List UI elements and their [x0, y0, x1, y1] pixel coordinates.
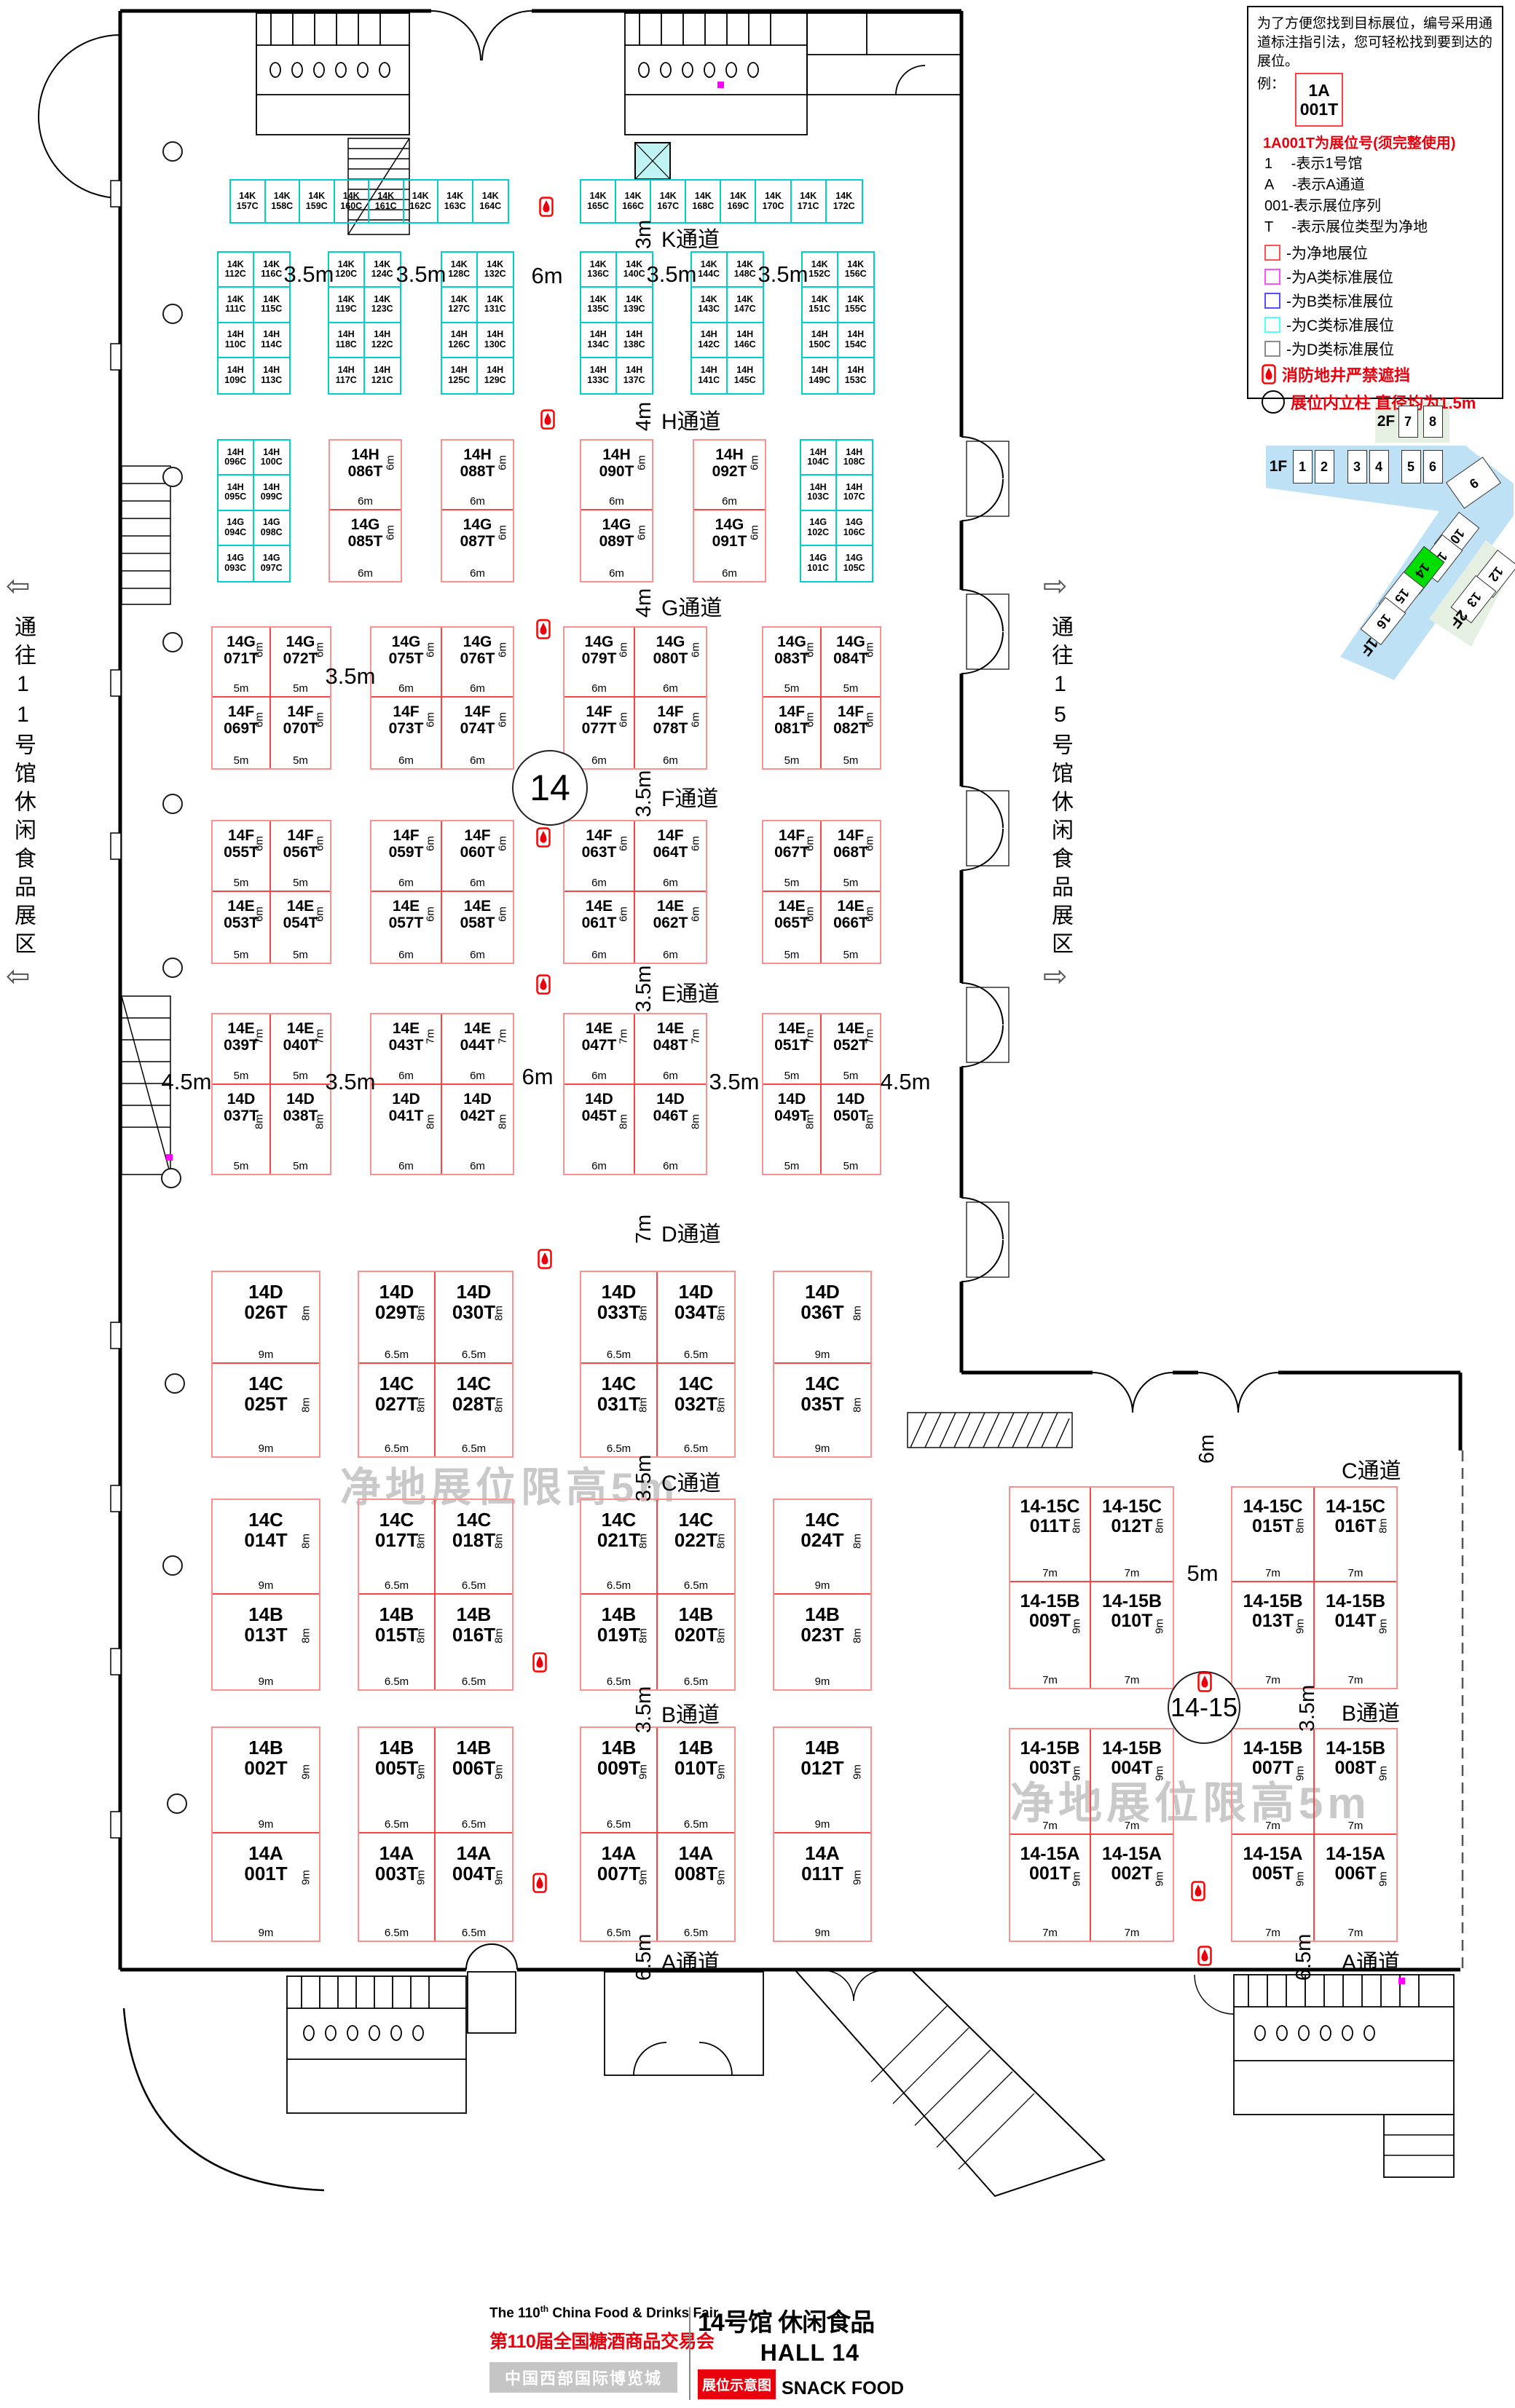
booth-14E054T: 14E054T6m5m: [271, 892, 330, 963]
booth-14K165C: 14K165C: [581, 181, 616, 222]
legend-item-type-c: -为C类标准展位: [1286, 314, 1394, 336]
booth-14G080T: 14G080T6m6m: [635, 628, 706, 698]
gap-dim-5: 3.5m: [323, 663, 378, 690]
booth-14E047T: 14E047T7m6m: [564, 1014, 635, 1085]
booth-14C032T: 14C032T8m6.5m: [658, 1364, 734, 1456]
column-marker-3: [162, 632, 183, 652]
booth-14B016T: 14B016T8m6.5m: [436, 1595, 512, 1689]
k-block-4: 14K136C14K140C14K135C14K139C14H134C14H13…: [580, 251, 653, 395]
booth-14G084T: 14G084T6m5m: [822, 628, 880, 698]
booth-14K169C: 14K169C: [721, 181, 756, 222]
booth-14A004T: 14A004T9m6.5m: [436, 1833, 512, 1941]
booth-14-15C011T: 14-15C011T8m7m: [1010, 1488, 1091, 1582]
minimap-floor1-label: 1F: [1266, 450, 1291, 483]
aisle-label-H通道: H通道: [661, 403, 721, 435]
booth-14-15C012T: 14-15C012T8m7m: [1091, 1488, 1173, 1582]
booth-14-15B014T: 14-15B014T9m7m: [1315, 1582, 1396, 1688]
booth-14-15C016T: 14-15C016T8m7m: [1315, 1488, 1396, 1582]
booth-14E044T: 14E044T7m6m: [442, 1014, 513, 1085]
gap-dim-4: 3.5m: [755, 261, 811, 288]
fire-well-icon-10: [1197, 1946, 1212, 1966]
minimap-hall-2: 2: [1315, 450, 1334, 483]
booth-14D042T: 14D042T8m6m: [442, 1085, 513, 1174]
aisle-label-A通道: A通道: [661, 1944, 720, 1976]
minimap-floor2-label: 2F: [1374, 406, 1398, 438]
booth-14H154C: 14H154C: [838, 323, 874, 358]
hall-title-en: HALL 14: [698, 2340, 859, 2366]
booth-14E043T: 14E043T7m6m: [371, 1014, 442, 1085]
fire-well-icon-9: [1191, 1881, 1205, 1901]
booth-14C024T: 14C024T8m9m: [774, 1500, 870, 1595]
gap-dim-10: 4.5m: [878, 1069, 933, 1095]
legend-def-4: T -表示展位类型为净地: [1264, 217, 1493, 238]
column-icon: [1262, 390, 1285, 414]
booth-14G076T: 14G076T6m6m: [442, 628, 513, 698]
gf-block-4: 14G083T6m5m14G084T6m5m14F081T6m5m14F082T…: [762, 626, 881, 770]
annex-aisle-dim-B通道: 3.5m: [1272, 1694, 1342, 1723]
right-corridor-arrow-top: ⇨: [1043, 569, 1068, 603]
booth-14E058T: 14E058T6m6m: [442, 892, 513, 963]
utility-dot-2: [1398, 1978, 1405, 1984]
booth-14D033T: 14D033T8m6.5m: [581, 1272, 658, 1364]
booth-14F055T: 14F055T6m5m: [213, 821, 271, 892]
booth-14D045T: 14D045T8m6m: [564, 1085, 635, 1174]
aisle-label-B通道: B通道: [661, 1697, 720, 1729]
legend-item-type-d: -为D类标准展位: [1286, 338, 1394, 360]
annex-aisle-label-C通道: C通道: [1342, 1453, 1401, 1485]
booth-14H096C: 14H096C: [219, 441, 254, 475]
booth-14B015T: 14B015T8m6.5m: [359, 1595, 436, 1689]
swatch-open-space: [1264, 245, 1280, 261]
booth-14A003T: 14A003T9m6.5m: [359, 1833, 436, 1941]
booth-14E051T: 14E051T7m5m: [763, 1014, 822, 1085]
footer-divider: [689, 2307, 690, 2400]
swatch-type-c: [1264, 317, 1280, 333]
aisle-label-G通道: G通道: [661, 590, 722, 622]
booth-14K143C: 14K143C: [692, 288, 728, 323]
booth-14C022T: 14C022T8m6.5m: [658, 1500, 734, 1595]
booth-14H149C: 14H149C: [803, 358, 838, 393]
column-marker-9: [167, 1793, 187, 1814]
legend-item-open-space: -为净地展位: [1286, 242, 1368, 264]
booth-14K132C: 14K132C: [478, 253, 513, 288]
aisle-label-F通道: F通道: [661, 781, 718, 813]
booth-14-15A002T: 14-15A002T9m7m: [1091, 1835, 1173, 1941]
booth-14K147C: 14K147C: [728, 288, 763, 323]
booth-14G091T: 14G091T6m6m: [694, 510, 765, 581]
booth-14C027T: 14C027T8m6.5m: [359, 1364, 436, 1456]
booth-14G089T: 14G089T6m6m: [581, 510, 652, 581]
booth-14H150C: 14H150C: [803, 323, 838, 358]
gap-dim-6: 4.5m: [159, 1069, 214, 1095]
booth-14D046T: 14D046T8m6m: [635, 1085, 706, 1174]
booth-14F074T: 14F074T6m6m: [442, 698, 513, 768]
booth-14F078T: 14F078T6m6m: [635, 698, 706, 768]
booth-14C018T: 14C018T8m6.5m: [436, 1500, 512, 1595]
booth-14G075T: 14G075T6m6m: [371, 628, 442, 698]
booth-14G098C: 14G098C: [254, 511, 290, 546]
booth-14-15B008T: 14-15B008T9m7m: [1315, 1729, 1396, 1835]
annex-upper-block-1: 14-15C011T8m7m14-15C012T8m7m14-15B009T9m…: [1009, 1486, 1174, 1689]
booth-14A011T: 14A011T9m9m: [774, 1833, 870, 1941]
booth-14-15A001T: 14-15A001T9m7m: [1010, 1835, 1091, 1941]
booth-14H114C: 14H114C: [254, 323, 290, 358]
booth-14E057T: 14E057T6m6m: [371, 892, 442, 963]
booth-14H088T: 14H088T6m6m: [442, 441, 513, 510]
booth-14H107C: 14H107C: [837, 475, 873, 510]
booth-14H137C: 14H137C: [617, 358, 653, 393]
annex-aisle-dim-C通道: 6m: [1172, 1434, 1242, 1464]
fire-well-icon-7: [532, 1873, 547, 1893]
booth-14H110C: 14H110C: [219, 323, 254, 358]
gf-block-2: 14G075T6m6m14G076T6m6m14F073T6m6m14F074T…: [370, 626, 514, 770]
booth-14G083T: 14G083T6m5m: [763, 628, 822, 698]
booth-14D036T: 14D036T8m9m: [774, 1272, 870, 1364]
booth-14-15B010T: 14-15B010T9m7m: [1091, 1582, 1173, 1688]
booth-14B005T: 14B005T9m6.5m: [359, 1728, 436, 1833]
right-corridor-label: 通往15号馆休闲食品展区: [1044, 615, 1076, 960]
dc-block-4: 14D036T8m9m14C035T8m9m: [773, 1271, 872, 1458]
booth-14H121C: 14H121C: [365, 358, 401, 393]
dc-block-3: 14D033T8m6.5m14D034T8m6.5m14C031T8m6.5m1…: [580, 1271, 736, 1458]
legend-example-label: 例：: [1257, 73, 1285, 92]
booth-14H103C: 14H103C: [801, 475, 837, 510]
hall14-floorplan: 为了方便您找到目标展位，编号采用通道标注指引法，您可轻松找到要到达的展位。 例：…: [0, 0, 1515, 2408]
booth-14H126C: 14H126C: [442, 323, 478, 358]
booth-14F063T: 14F063T6m6m: [564, 821, 635, 892]
k-block-6: 14K152C14K156C14K151C14K155C14H150C14H15…: [801, 251, 875, 395]
booth-14H133C: 14H133C: [581, 358, 617, 393]
booth-14E065T: 14E065T6m5m: [763, 892, 822, 963]
booth-14G085T: 14G085T6m6m: [330, 510, 401, 581]
right-corridor-arrow-bottom: ⇨: [1043, 960, 1068, 993]
annex-lower-block-2: 14-15B007T9m7m14-15B008T9m7m14-15A005T9m…: [1231, 1728, 1398, 1942]
footer: The 110th China Food & Drinks Fair 第110届…: [481, 2302, 859, 2404]
booth-14K158C: 14K158C: [266, 181, 301, 222]
k-block-3: 14K128C14K132C14K127C14K131C14H126C14H13…: [441, 251, 514, 395]
booth-14D026T: 14D026T8m9m: [213, 1272, 319, 1364]
booth-14H108C: 14H108C: [837, 441, 873, 475]
booth-14H118C: 14H118C: [329, 323, 365, 358]
minimap-hall-7: 7: [1398, 406, 1418, 438]
annex-upper-block-2: 14-15C015T8m7m14-15C016T8m7m14-15B013T9m…: [1231, 1486, 1398, 1689]
cb-block-1: 14C014T8m9m14B013T8m9m: [211, 1499, 320, 1691]
booth-14K160C: 14K160C: [335, 181, 370, 222]
booth-14K172C: 14K172C: [827, 181, 862, 222]
booth-14B020T: 14B020T8m6.5m: [658, 1595, 734, 1689]
swatch-type-b: [1264, 293, 1280, 309]
annex-aisle-dim-A通道: 6.5m: [1269, 1943, 1339, 1972]
legend-item-type-a: -为A类标准展位: [1286, 266, 1393, 288]
legend-example-booth-code: 001T: [1300, 100, 1338, 119]
fire-well-icon-1: [540, 409, 555, 430]
booth-14B019T: 14B019T8m6.5m: [581, 1595, 658, 1689]
booth-14-15B013T: 14-15B013T9m7m: [1232, 1582, 1315, 1688]
minimap-hall-8: 8: [1423, 406, 1443, 438]
minimap-hall-1: 1: [1293, 450, 1313, 483]
booth-14K135C: 14K135C: [581, 288, 617, 323]
booth-14D041T: 14D041T8m6m: [371, 1085, 442, 1174]
ba-block-2: 14B005T9m6.5m14B006T9m6.5m14A003T9m6.5m1…: [358, 1726, 513, 1942]
ba-block-4: 14B012T9m9m14A011T9m9m: [773, 1726, 872, 1942]
k-top-row-right: 14K165C14K166C14K167C14K168C14K169C14K17…: [580, 179, 863, 224]
cb-block-4: 14C024T8m9m14B023T8m9m: [773, 1499, 872, 1691]
aisle-label-D通道: D通道: [661, 1216, 721, 1248]
booth-14E052T: 14E052T7m5m: [822, 1014, 880, 1085]
booth-14B013T: 14B013T8m9m: [213, 1595, 319, 1689]
fe-block-4: 14F067T6m5m14F068T6m5m14E065T6m5m14E066T…: [762, 820, 881, 964]
booth-14G087T: 14G087T6m6m: [442, 510, 513, 581]
fe-block-2: 14F059T6m6m14F060T6m6m14E057T6m6m14E058T…: [370, 820, 514, 964]
booth-14F077T: 14F077T6m6m: [564, 698, 635, 768]
annex-aisle-label-A通道: A通道: [1342, 1944, 1400, 1976]
column-marker-8: [162, 1555, 183, 1576]
booth-14K164C: 14K164C: [473, 181, 508, 222]
booth-14C031T: 14C031T8m6.5m: [581, 1364, 658, 1456]
booth-14G102C: 14G102C: [801, 511, 837, 546]
gf-block-3: 14G079T6m6m14G080T6m6m14F077T6m6m14F078T…: [563, 626, 707, 770]
booth-14H145C: 14H145C: [728, 358, 763, 393]
ed-block-4: 14E051T7m5m14E052T7m5m14D049T8m5m14D050T…: [762, 1013, 881, 1175]
booth-14E039T: 14E039T7m5m: [213, 1014, 271, 1085]
booth-14G079T: 14G079T6m6m: [564, 628, 635, 698]
booth-14H104C: 14H104C: [801, 441, 837, 475]
booth-14F056T: 14F056T6m5m: [271, 821, 330, 892]
utility-dot-0: [717, 82, 724, 88]
booth-14D029T: 14D029T8m6.5m: [359, 1272, 436, 1364]
booth-14H130C: 14H130C: [478, 323, 513, 358]
booth-14D050T: 14D050T8m5m: [822, 1085, 880, 1174]
booth-14K163C: 14K163C: [438, 181, 473, 222]
booth-14C021T: 14C021T8m6.5m: [581, 1500, 658, 1595]
aisle-label-E通道: E通道: [661, 976, 720, 1008]
legend-example-note: 1A001T为展位号(须完整使用): [1263, 131, 1493, 152]
column-marker-7: [165, 1373, 185, 1394]
left-corridor-label: 通往11号馆休闲食品展区: [7, 615, 39, 960]
booth-14H117C: 14H117C: [329, 358, 365, 393]
annex-lower-block-1: 14-15B003T9m7m14-15B004T9m7m14-15A001T9m…: [1009, 1728, 1174, 1942]
legend-example-booth: 1A 001T: [1295, 73, 1343, 127]
booth-14K161C: 14K161C: [369, 181, 404, 222]
booth-14G106C: 14G106C: [837, 511, 873, 546]
booth-14K127C: 14K127C: [442, 288, 478, 323]
booth-14H153C: 14H153C: [838, 358, 874, 393]
booth-14D038T: 14D038T8m5m: [271, 1085, 330, 1174]
booth-14H138C: 14H138C: [617, 323, 653, 358]
booth-14E048T: 14E048T7m6m: [635, 1014, 706, 1085]
legend-item-type-b: -为B类标准展位: [1286, 290, 1393, 312]
dc-block-2: 14D029T8m6.5m14D030T8m6.5m14C027T8m6.5m1…: [358, 1271, 513, 1458]
booth-14H129C: 14H129C: [478, 358, 513, 393]
legend-def-3: 001-表示展位序列: [1264, 196, 1493, 217]
minimap-hall-5: 5: [1401, 450, 1421, 483]
booth-14F067T: 14F067T6m5m: [763, 821, 822, 892]
k-block-5: 14K144C14K148C14K143C14K147C14H142C14H14…: [690, 251, 764, 395]
booth-14B010T: 14B010T9m6.5m: [658, 1728, 734, 1833]
hg-cyan-right: 14H104C14H108C14H103C14H107C14G102C14G10…: [800, 439, 873, 583]
booth-14C028T: 14C028T8m6.5m: [436, 1364, 512, 1456]
gap-dim-3: 3.5m: [644, 261, 699, 288]
gap-dim-11: 5m: [1175, 1560, 1230, 1587]
booth-14-15C015T: 14-15C015T8m7m: [1232, 1488, 1315, 1582]
booth-14-15B009T: 14-15B009T9m7m: [1010, 1582, 1091, 1688]
fe-block-1: 14F055T6m5m14F056T6m5m14E053T6m5m14E054T…: [211, 820, 331, 964]
hg-pair-3: 14H090T6m6m14G089T6m6m: [580, 439, 653, 583]
ed-block-1: 14E039T7m5m14E040T7m5m14D037T8m5m14D038T…: [211, 1013, 331, 1175]
booth-14H100C: 14H100C: [254, 441, 290, 475]
booth-14K157C: 14K157C: [231, 181, 266, 222]
booth-14G093C: 14G093C: [219, 546, 254, 581]
minimap-hall-3: 3: [1347, 450, 1367, 483]
booth-14B023T: 14B023T8m9m: [774, 1595, 870, 1689]
booth-14F081T: 14F081T6m5m: [763, 698, 822, 768]
column-marker-0: [162, 141, 183, 162]
fair-title-cn: 第110届全国糖酒商品交易会: [489, 2327, 680, 2353]
legend-panel: 为了方便您找到目标展位，编号采用通道标注指引法，您可轻松找到要到达的展位。 例：…: [1247, 6, 1503, 399]
hg-pair-2: 14H088T6m6m14G087T6m6m: [441, 439, 514, 583]
hg-cyan-left: 14H096C14H100C14H095C14H099C14G094C14G09…: [217, 439, 291, 583]
gap-dim-9: 3.5m: [707, 1069, 762, 1095]
column-marker-1: [162, 304, 183, 324]
booth-14E040T: 14E040T7m5m: [271, 1014, 330, 1085]
booth-14H109C: 14H109C: [219, 358, 254, 393]
booth-14B012T: 14B012T9m9m: [774, 1728, 870, 1833]
booth-14H125C: 14H125C: [442, 358, 478, 393]
column-marker-2: [162, 467, 183, 487]
booth-14G094C: 14G094C: [219, 511, 254, 546]
booth-14C014T: 14C014T8m9m: [213, 1500, 319, 1595]
ba-block-3: 14B009T9m6.5m14B010T9m6.5m14A007T9m6.5m1…: [580, 1726, 736, 1942]
booth-14F064T: 14F064T6m6m: [635, 821, 706, 892]
gap-dim-8: 6m: [510, 1064, 565, 1090]
booth-14K167C: 14K167C: [651, 181, 686, 222]
gap-dim-7: 3.5m: [323, 1069, 378, 1095]
booth-14K171C: 14K171C: [792, 181, 827, 222]
booth-14E061T: 14E061T6m6m: [564, 892, 635, 963]
hall-marker-14: 14: [512, 750, 588, 826]
hg-pair-1: 14H086T6m6m14G085T6m6m: [328, 439, 402, 583]
booth-14E066T: 14E066T6m5m: [822, 892, 880, 963]
booth-14-15B003T: 14-15B003T9m7m: [1010, 1729, 1091, 1835]
booth-14H113C: 14H113C: [254, 358, 290, 393]
gap-dim-0: 3.5m: [281, 261, 337, 288]
map-type-tag: 展位示意图: [698, 2369, 776, 2399]
fire-well-icon: [1262, 364, 1276, 384]
ed-block-3: 14E047T7m6m14E048T7m6m14D045T8m6m14D046T…: [563, 1013, 707, 1175]
minimap-hall-6: 6: [1423, 450, 1443, 483]
column-marker-4: [162, 794, 183, 814]
booth-14H134C: 14H134C: [581, 323, 617, 358]
booth-14F073T: 14F073T6m6m: [371, 698, 442, 768]
booth-14K119C: 14K119C: [329, 288, 365, 323]
aisle-label-C通道: C通道: [661, 1465, 721, 1497]
booth-14D037T: 14D037T8m5m: [213, 1085, 271, 1174]
dc-block-1: 14D026T8m9m14C025T8m9m: [211, 1271, 320, 1458]
booth-14H142C: 14H142C: [692, 323, 728, 358]
fire-well-icon-8: [1197, 1672, 1212, 1692]
utility-dot-1: [166, 1154, 173, 1161]
fair-title-en: The 110th China Food & Drinks Fair: [489, 2304, 680, 2321]
booth-14D030T: 14D030T8m6.5m: [436, 1272, 512, 1364]
fire-well-icon-5: [538, 1249, 552, 1269]
column-marker-5: [162, 958, 183, 978]
fire-well-icon-3: [536, 827, 551, 848]
legend-def-1: 1 -表示1号馆: [1264, 154, 1493, 175]
ed-block-2: 14E043T7m6m14E044T7m6m14D041T8m6m14D042T…: [370, 1013, 514, 1175]
booth-14K112C: 14K112C: [219, 253, 254, 288]
booth-14C017T: 14C017T8m6.5m: [359, 1500, 436, 1595]
booth-14H086T: 14H086T6m6m: [330, 441, 401, 510]
swatch-type-d: [1264, 341, 1280, 357]
booth-14H099C: 14H099C: [254, 475, 290, 510]
booth-14K168C: 14K168C: [686, 181, 721, 222]
booth-14K170C: 14K170C: [757, 181, 792, 222]
legend-intro: 为了方便您找到目标展位，编号采用通道标注指引法，您可轻松找到要到达的展位。: [1257, 15, 1493, 71]
legend-def-2: A -表示A通道: [1264, 175, 1493, 196]
booth-14G101C: 14G101C: [801, 546, 837, 581]
booth-14H141C: 14H141C: [692, 358, 728, 393]
swatch-type-a: [1264, 269, 1280, 285]
booth-14C035T: 14C035T8m9m: [774, 1364, 870, 1456]
booth-14K136C: 14K136C: [581, 253, 617, 288]
booth-14B006T: 14B006T9m6.5m: [436, 1728, 512, 1833]
booth-14H122C: 14H122C: [365, 323, 401, 358]
gap-dim-1: 3.5m: [393, 261, 449, 288]
booth-14H092T: 14H092T6m6m: [694, 441, 765, 510]
booth-14H146C: 14H146C: [728, 323, 763, 358]
booth-14K166C: 14K166C: [616, 181, 651, 222]
booth-14H090T: 14H090T6m6m: [581, 441, 652, 510]
booth-14-15A006T: 14-15A006T9m7m: [1315, 1835, 1396, 1941]
left-corridor-arrow-bottom: ⇦: [6, 960, 31, 993]
cb-block-3: 14C021T8m6.5m14C022T8m6.5m14B019T8m6.5m1…: [580, 1499, 736, 1691]
booth-14K139C: 14K139C: [617, 288, 653, 323]
left-corridor-arrow-top: ⇦: [6, 569, 31, 603]
minimap-hall-4: 4: [1369, 450, 1389, 483]
hall-category-en: SNACK FOOD: [782, 2378, 904, 2399]
ba-block-1: 14B002T9m9m14A001T9m9m: [211, 1726, 320, 1942]
fire-well-icon-0: [539, 197, 554, 217]
booth-14D034T: 14D034T8m6.5m: [658, 1272, 734, 1364]
booth-14H095C: 14H095C: [219, 475, 254, 510]
fire-well-icon-4: [536, 974, 551, 995]
booth-14G105C: 14G105C: [837, 546, 873, 581]
booth-14F069T: 14F069T6m5m: [213, 698, 271, 768]
booth-14K162C: 14K162C: [404, 181, 439, 222]
booth-14K159C: 14K159C: [300, 181, 335, 222]
booth-14A007T: 14A007T9m6.5m: [581, 1833, 658, 1941]
booth-14K156C: 14K156C: [838, 253, 874, 288]
fire-well-icon-6: [532, 1652, 547, 1673]
booth-14A001T: 14A001T9m9m: [213, 1833, 319, 1941]
cb-block-2: 14C017T8m6.5m14C018T8m6.5m14B015T8m6.5m1…: [358, 1499, 513, 1691]
hall-title-cn: 14号馆 休闲食品: [698, 2302, 859, 2338]
legend-example-hall-code: 1A: [1308, 81, 1329, 100]
booth-14-15A005T: 14-15A005T9m7m: [1232, 1835, 1315, 1941]
fe-block-3: 14F063T6m6m14F064T6m6m14E061T6m6m14E062T…: [563, 820, 707, 964]
booth-14A008T: 14A008T9m6.5m: [658, 1833, 734, 1941]
booth-14K155C: 14K155C: [838, 288, 874, 323]
booth-14E053T: 14E053T6m5m: [213, 892, 271, 963]
venue-name: 中国西部国际博览城: [489, 2362, 677, 2393]
booth-14F059T: 14F059T6m6m: [371, 821, 442, 892]
k-top-row-left: 14K157C14K158C14K159C14K160C14K161C14K16…: [229, 179, 509, 224]
booth-14D049T: 14D049T8m5m: [763, 1085, 822, 1174]
legend-fire-note: 消防地井严禁遮挡: [1282, 363, 1410, 386]
annex-aisle-label-B通道: B通道: [1342, 1695, 1400, 1727]
gap-dim-2: 6m: [519, 263, 575, 289]
booth-14G097C: 14G097C: [254, 546, 290, 581]
